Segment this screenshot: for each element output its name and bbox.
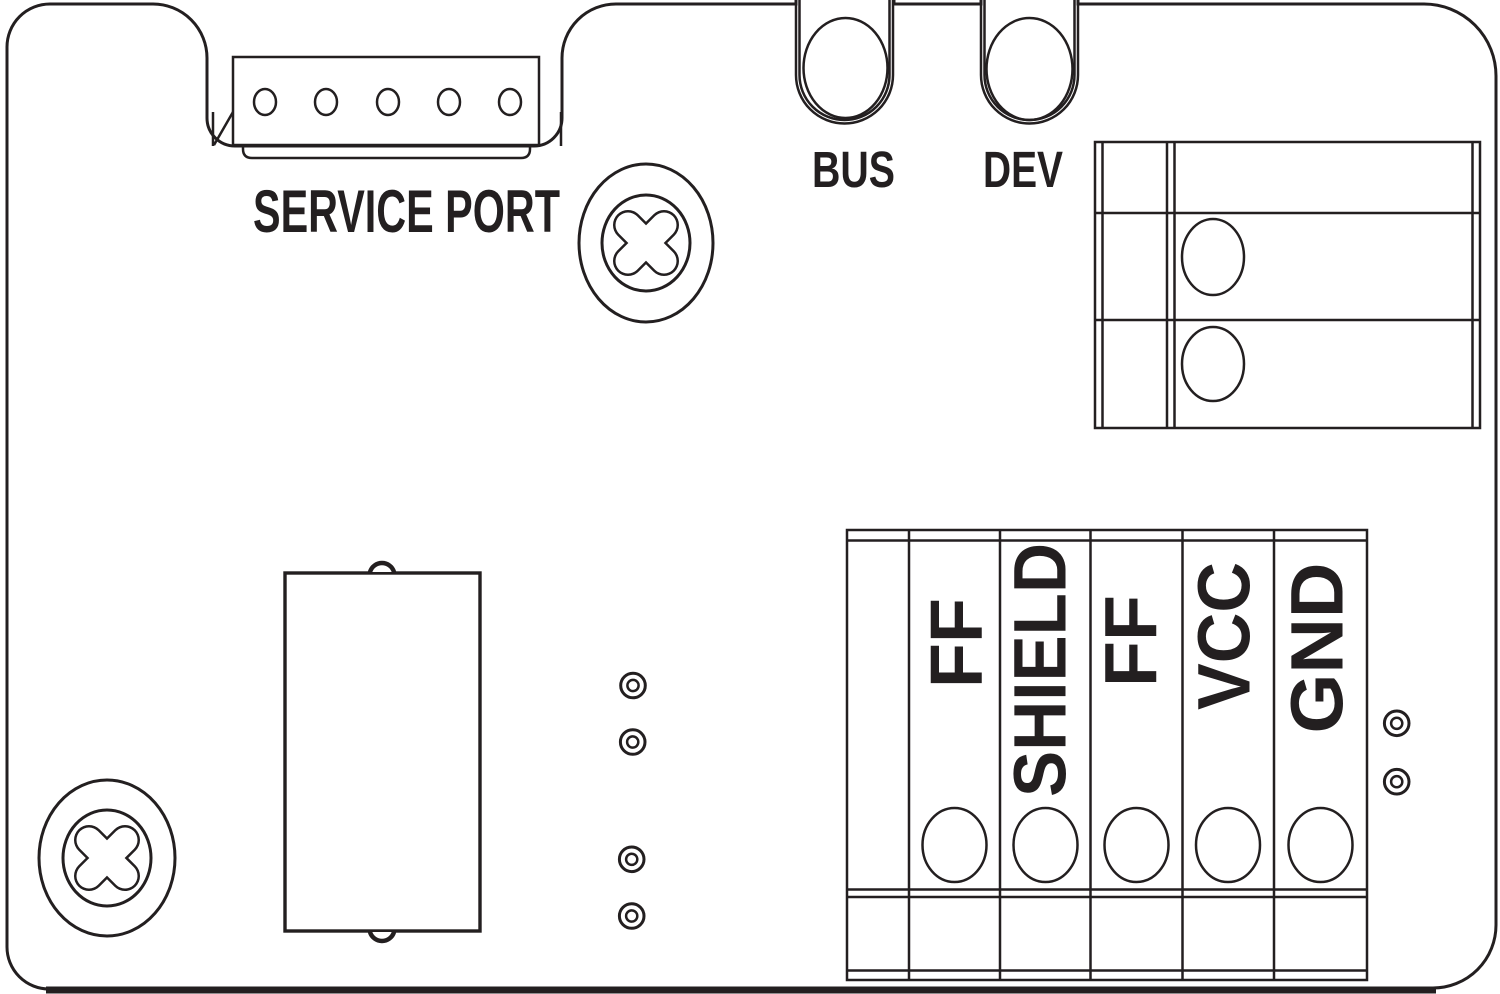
component-box [285, 563, 480, 941]
wire-entry-hole [1105, 808, 1169, 882]
wire-entry-hole [1289, 808, 1353, 882]
test-point-ring [619, 904, 644, 929]
dev-label: DEV [983, 141, 1063, 198]
terminal-label-ff-2: FF [1090, 595, 1173, 687]
board-outline [7, 0, 1496, 989]
connector-pin-hole [254, 89, 276, 115]
bus-label: BUS [812, 141, 895, 198]
connector-pin-hole [377, 89, 399, 115]
test-point-ring [1384, 769, 1409, 794]
connector-block-body [1095, 142, 1480, 428]
wire-entry-hole [923, 808, 987, 882]
bus-led [804, 18, 888, 118]
bus-led-slot [796, 0, 893, 124]
screw-icon [39, 780, 175, 936]
connector-block [1095, 142, 1480, 428]
screw-cross-recess-icon [628, 225, 664, 261]
dev-led-slot [981, 0, 1078, 124]
connector-block-hole [1182, 219, 1244, 295]
terminal-block: FF SHIELD FF VCC GND [847, 530, 1367, 980]
connector-body [233, 57, 539, 145]
device-panel-diagram: SERVICE PORT BUS DEV [0, 0, 1500, 994]
test-point-ring [619, 847, 644, 872]
wire-entry-hole [1196, 808, 1260, 882]
wire-entry-hole [1014, 808, 1078, 882]
component-tab-top [370, 563, 394, 572]
connector-block-row-divider [1095, 213, 1480, 320]
test-point-ring [1384, 711, 1409, 736]
connector-pin-hole [438, 89, 460, 115]
screw-cross-recess-icon [89, 840, 125, 876]
test-point-ring [621, 673, 646, 698]
terminal-label-vcc: VCC [1183, 562, 1266, 710]
service-port-connector [213, 57, 561, 158]
screw-icon [579, 164, 713, 322]
component-body [285, 573, 480, 931]
test-point-ring [620, 730, 645, 755]
terminal-label-shield: SHIELD [999, 543, 1082, 797]
connector-pin-hole [499, 89, 521, 115]
connector-side-detail [213, 112, 561, 146]
service-port-label: SERVICE PORT [253, 178, 560, 245]
component-tab-bottom [370, 932, 394, 941]
terminal-label-gnd: GND [1276, 563, 1359, 734]
connector-block-hole [1182, 327, 1244, 401]
terminal-label-ff-1: FF [915, 598, 998, 688]
connector-pin-hole [315, 89, 337, 115]
dev-led [987, 18, 1073, 120]
connector-block-vertical-lines [1103, 142, 1473, 428]
